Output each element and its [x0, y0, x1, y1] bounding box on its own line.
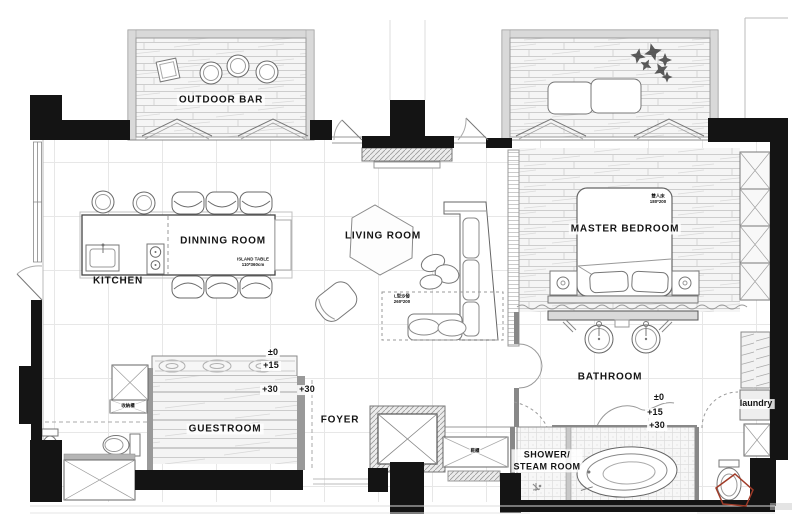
outdoor-bar-balcony: [128, 30, 314, 140]
planter-box: [156, 58, 180, 82]
dining-chair: [172, 276, 204, 298]
door-swing: [17, 266, 42, 274]
sink-icon: [86, 244, 119, 272]
toilet-icon: [103, 434, 140, 456]
bed-size: 180*200: [650, 199, 666, 205]
sofa-size: 260*200: [394, 299, 410, 305]
outdoor-bar-label: OUTDOOR BAR: [177, 95, 265, 106]
level-plus30-bath: +30: [647, 421, 667, 431]
sofa-annotation: L型沙發 260*200: [393, 294, 412, 305]
shower-label-line2: STEAM ROOM: [514, 461, 581, 473]
wardrobe: [740, 152, 770, 300]
master-balcony: [502, 30, 718, 140]
window: [33, 142, 42, 262]
level-zero-bath: ±0: [652, 393, 666, 403]
kitchen-stool: [92, 191, 114, 213]
level-plus30-foyer: +30: [297, 385, 317, 395]
toilet-icon: [717, 460, 741, 500]
dinning-room-label: DINNING ROOM: [178, 236, 268, 247]
door-leaf: [17, 274, 42, 300]
level-zero-left: ±0: [266, 348, 280, 358]
cabinet-annotation: 收納櫃: [120, 403, 135, 409]
bar-stool: [227, 55, 249, 77]
shower-steam-room-label: SHOWER/ STEAM ROOM: [512, 449, 583, 472]
kitchen-label: KITCHEN: [91, 276, 145, 287]
nightstand: [672, 271, 699, 295]
shoe-cabinet-annotation: 鞋櫃: [470, 448, 481, 454]
living-room-label: LIVING ROOM: [343, 231, 423, 242]
washing-machine: [744, 424, 770, 456]
nightstand: [550, 271, 577, 295]
guestroom-label: GUESTROOM: [187, 424, 264, 435]
laundry-label: laundry: [738, 399, 775, 409]
island-table-size: 110*360cm: [237, 262, 269, 268]
closet-xbox: [64, 454, 135, 500]
duct-lines: [390, 20, 425, 100]
foyer-label: FOYER: [319, 415, 361, 426]
vanity-counter: [548, 311, 698, 320]
dining-chair: [240, 192, 272, 214]
property-line: [745, 18, 788, 118]
shower-label-line1: SHOWER/: [514, 449, 581, 461]
dining-chair: [206, 276, 238, 298]
bar-stool: [200, 62, 222, 84]
level-plus30-left: +30: [260, 385, 280, 395]
floor-plan-drawing: [0, 0, 800, 519]
headboard: [548, 296, 698, 303]
tv-cabinet: [362, 148, 452, 168]
level-plus15-bath: +15: [645, 408, 665, 418]
dining-chair: [206, 192, 238, 214]
dining-chair: [240, 276, 272, 298]
bathroom-label: BATHROOM: [576, 372, 645, 383]
master-bedroom-label: MASTER BEDROOM: [569, 224, 681, 235]
island-table-annotation: ISLAND TABLE 110*360cm: [236, 257, 270, 268]
lounge-daybed: [548, 79, 641, 114]
level-plus15-left: +15: [261, 361, 281, 371]
dining-chair: [172, 192, 204, 214]
entry-step: [448, 471, 500, 481]
cooktop-icon: [147, 244, 164, 274]
apartment-floor-plan: OUTDOOR BAR DINNING ROOM ISLAND TABLE 11…: [0, 0, 800, 519]
bar-stool: [256, 61, 278, 83]
bed-annotation: 雙人床 180*200: [649, 194, 668, 205]
kitchen-stool: [133, 192, 155, 214]
